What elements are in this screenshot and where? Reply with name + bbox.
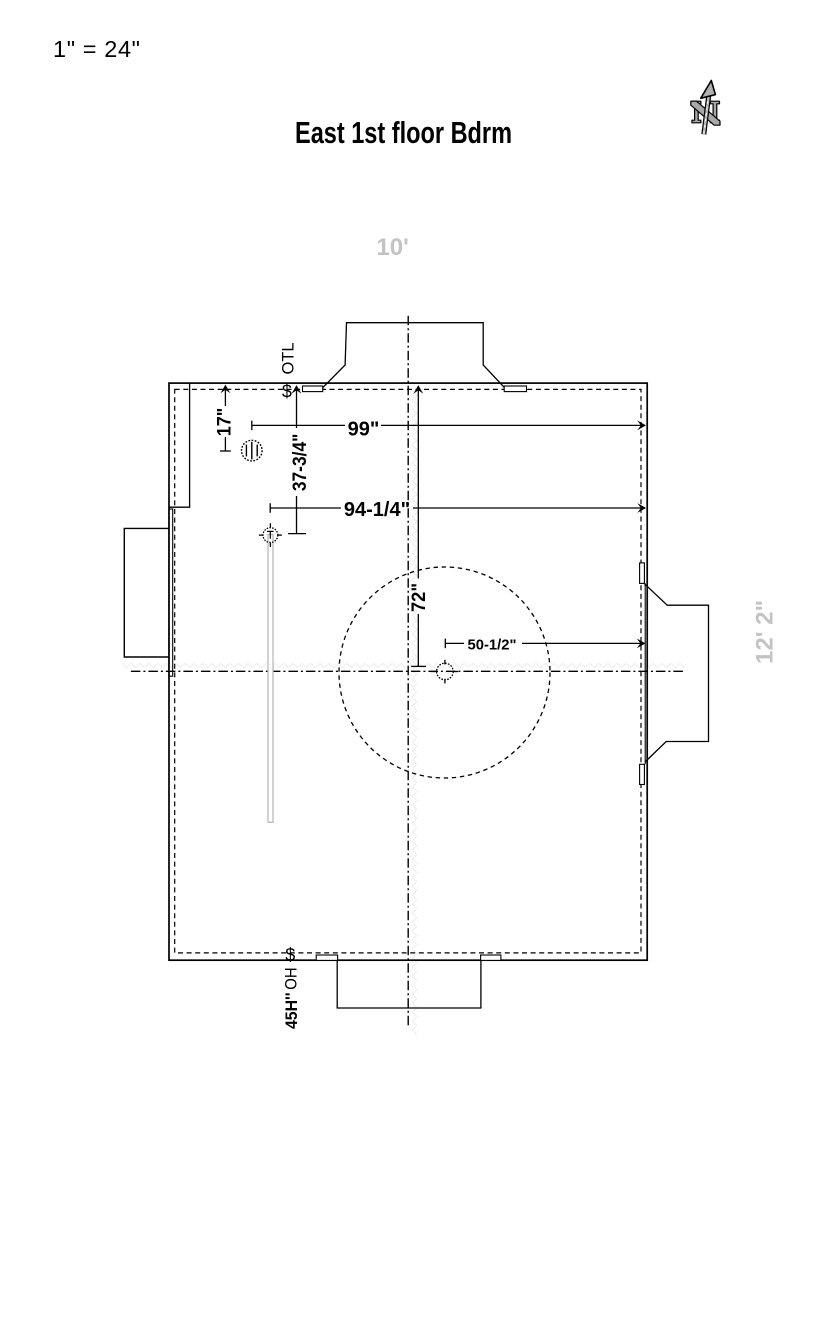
svg-text:OH: OH — [281, 967, 300, 989]
svg-text:10': 10' — [376, 234, 408, 261]
svg-text:$: $ — [282, 382, 292, 402]
svg-text:1" = 24": 1" = 24" — [53, 36, 140, 62]
svg-text:$: $ — [285, 945, 295, 965]
svg-text:94-1/4": 94-1/4" — [344, 499, 410, 521]
svg-text:99": 99" — [348, 418, 380, 440]
svg-text:72": 72" — [409, 583, 430, 612]
svg-text:45H'': 45H'' — [282, 993, 301, 1030]
svg-text:50-1/2": 50-1/2" — [468, 637, 517, 653]
svg-text:East 1st floor Bdrm: East 1st floor Bdrm — [295, 116, 512, 150]
svg-text:37-3/4": 37-3/4" — [290, 434, 311, 492]
svg-text:17": 17" — [214, 408, 235, 437]
svg-text:OTL: OTL — [278, 343, 297, 375]
svg-text:12' 2": 12' 2" — [751, 600, 778, 664]
